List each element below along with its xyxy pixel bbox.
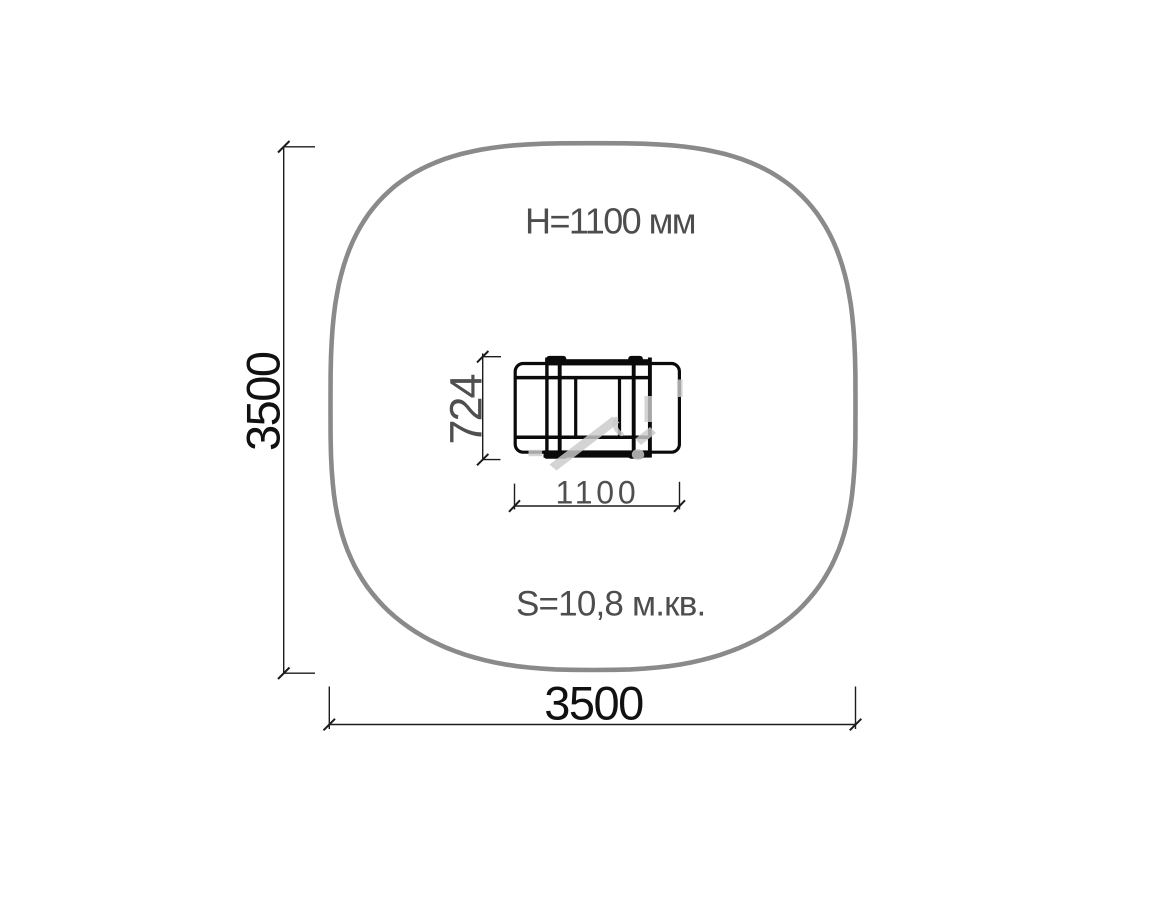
svg-text:1100: 1100 (555, 475, 639, 511)
svg-text:3500: 3500 (237, 352, 290, 451)
svg-text:3500: 3500 (544, 677, 643, 730)
svg-text:724: 724 (441, 374, 492, 444)
svg-text:S=10,8 м.кв.: S=10,8 м.кв. (516, 585, 705, 624)
svg-text:H=1100 мм: H=1100 мм (525, 201, 695, 242)
